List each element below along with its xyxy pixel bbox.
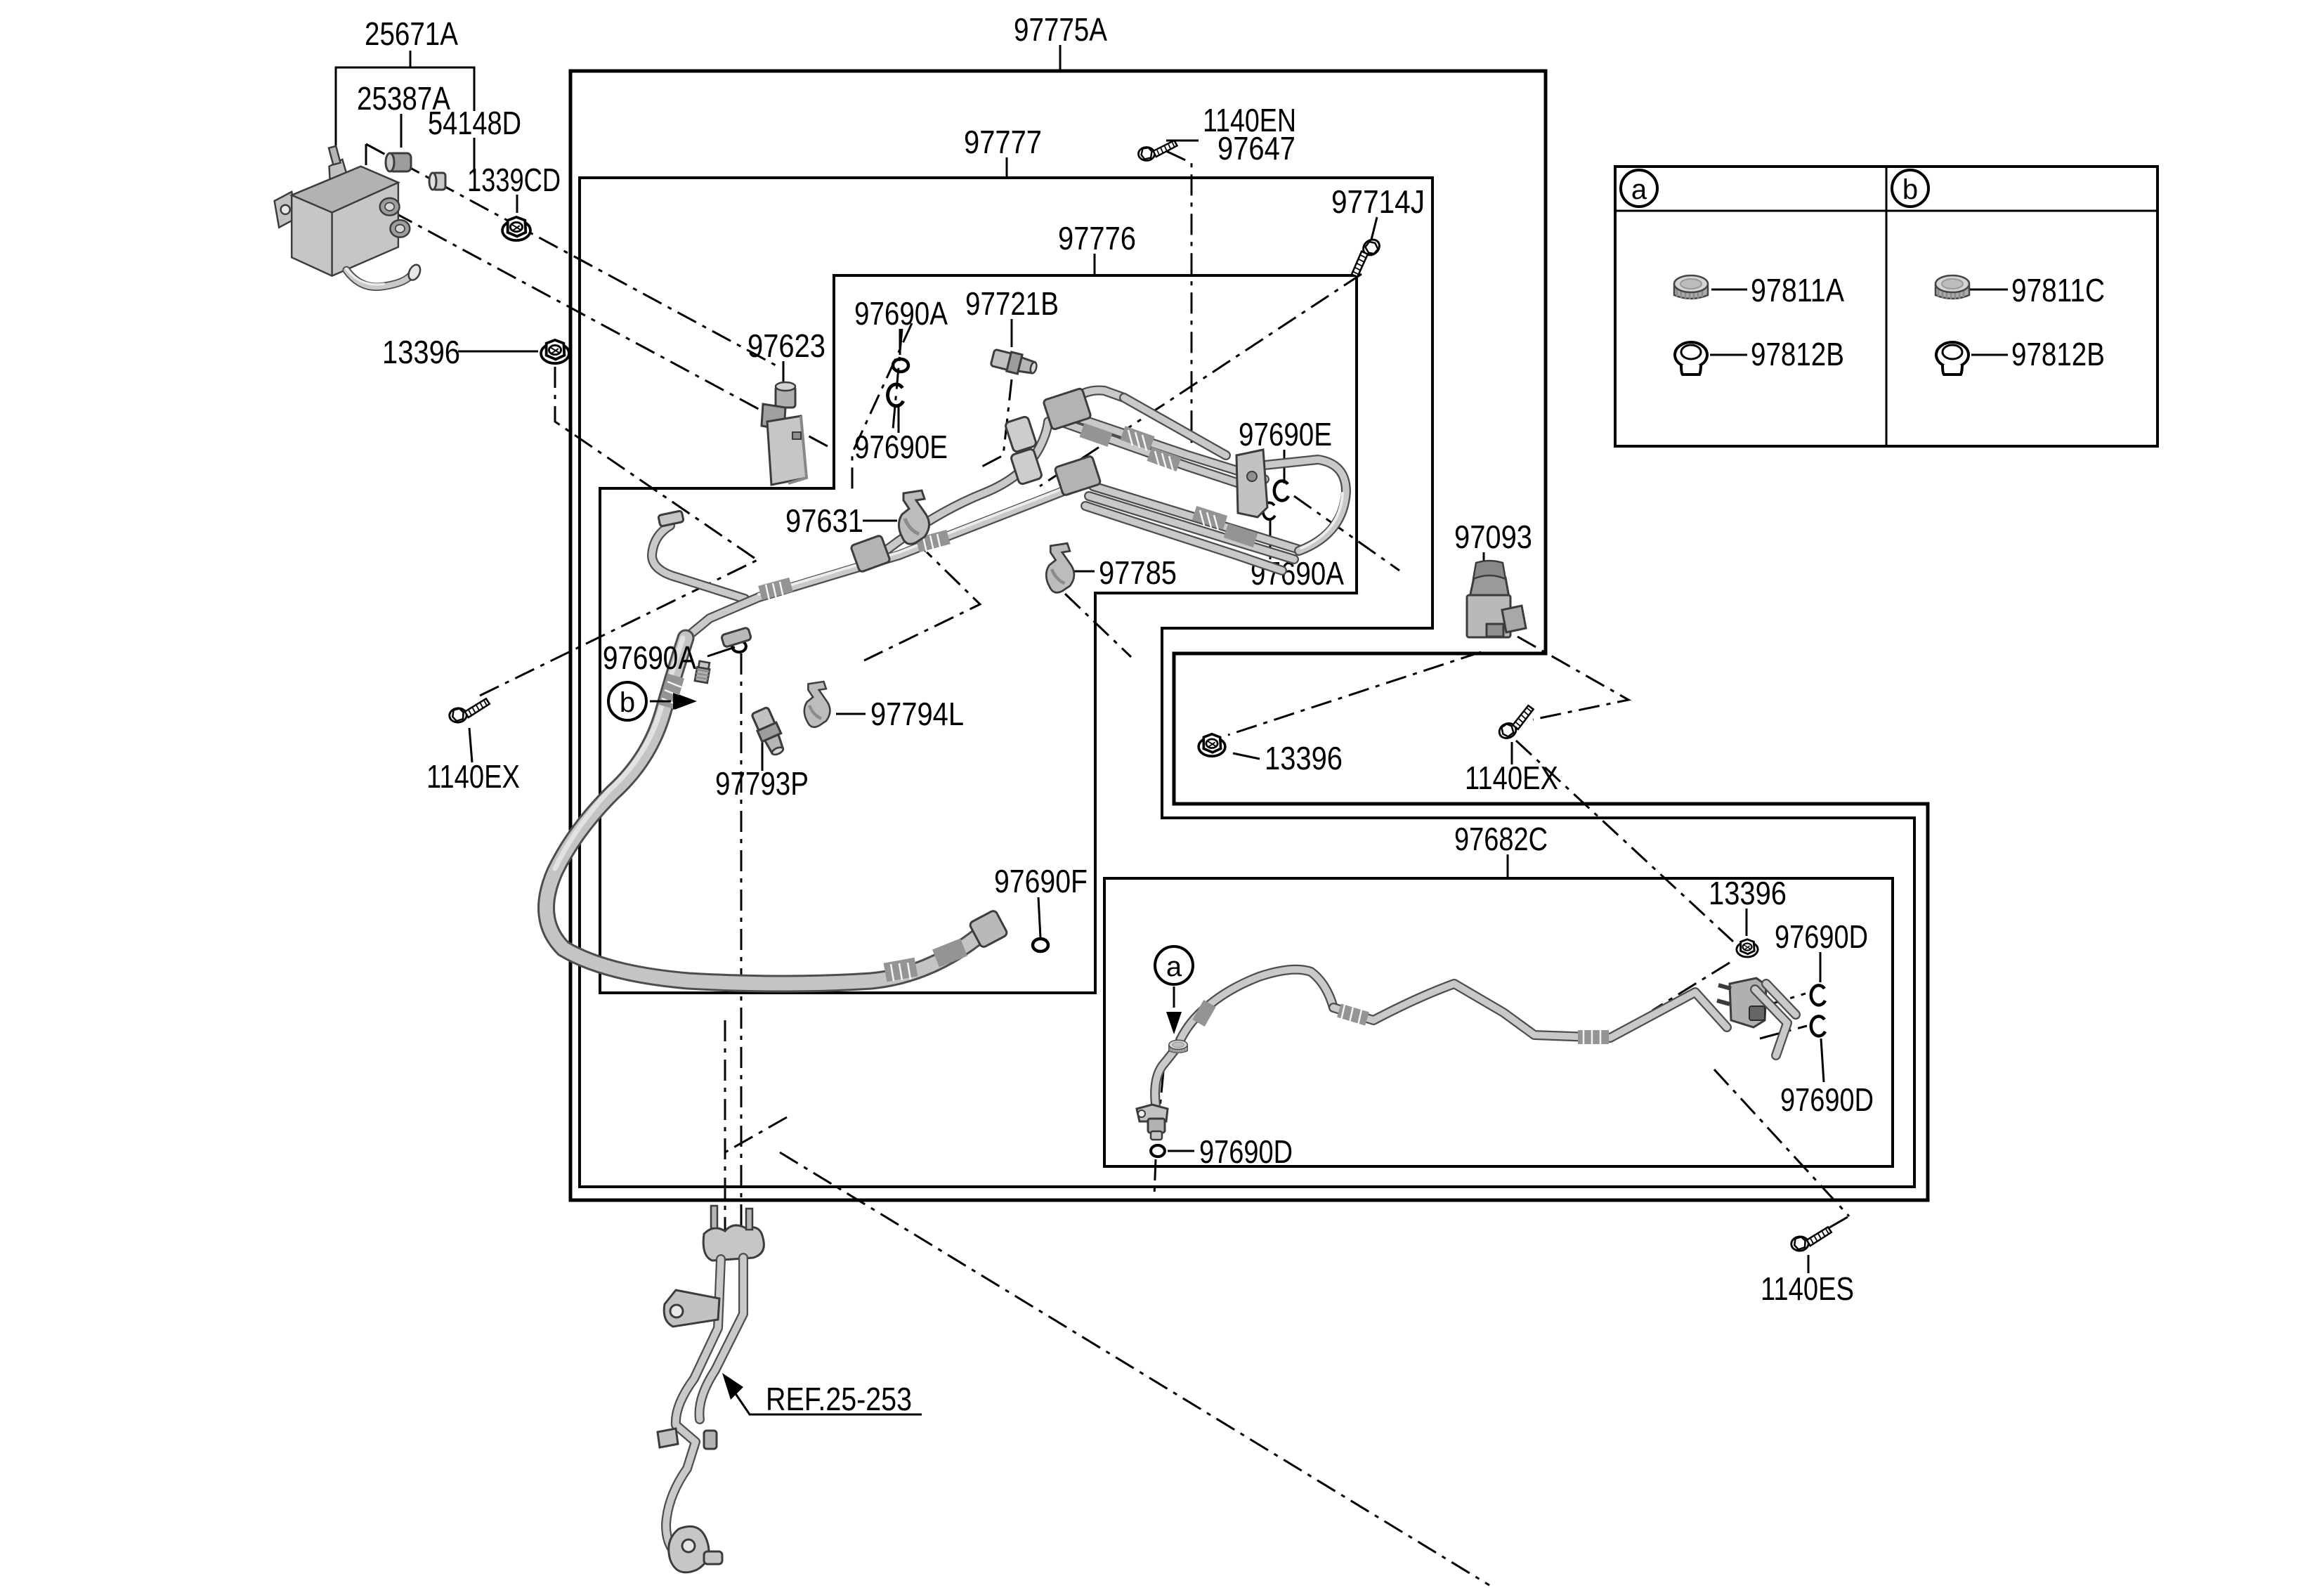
svg-text:97690E: 97690E bbox=[1239, 416, 1332, 453]
svg-text:97093: 97093 bbox=[1454, 519, 1532, 555]
svg-text:97714J: 97714J bbox=[1331, 183, 1425, 220]
svg-text:b: b bbox=[1902, 174, 1918, 205]
svg-text:25671A: 25671A bbox=[365, 15, 458, 52]
svg-text:97631: 97631 bbox=[785, 502, 863, 539]
svg-text:REF.25-253: REF.25-253 bbox=[766, 1381, 912, 1417]
svg-text:97811A: 97811A bbox=[1751, 272, 1844, 308]
svg-text:97811C: 97811C bbox=[2011, 272, 2105, 308]
svg-text:a: a bbox=[1631, 174, 1647, 205]
svg-text:97690F: 97690F bbox=[994, 863, 1088, 899]
svg-text:97690D: 97690D bbox=[1199, 1133, 1293, 1170]
svg-text:97647: 97647 bbox=[1218, 130, 1295, 167]
svg-text:97812B: 97812B bbox=[1751, 336, 1844, 372]
svg-text:13396: 13396 bbox=[1265, 740, 1343, 776]
svg-text:97794L: 97794L bbox=[870, 696, 964, 732]
svg-text:13396: 13396 bbox=[1709, 875, 1787, 911]
svg-text:97623: 97623 bbox=[748, 327, 825, 364]
svg-text:97690D: 97690D bbox=[1775, 918, 1868, 955]
svg-text:1140ES: 1140ES bbox=[1761, 1270, 1854, 1307]
svg-text:97690A: 97690A bbox=[854, 295, 948, 332]
svg-text:1339CD: 1339CD bbox=[467, 162, 561, 198]
svg-text:1140EX: 1140EX bbox=[426, 758, 520, 795]
svg-text:b: b bbox=[620, 687, 635, 718]
svg-text:97785: 97785 bbox=[1099, 554, 1177, 591]
svg-text:97812B: 97812B bbox=[2011, 336, 2105, 372]
svg-text:a: a bbox=[1166, 951, 1182, 982]
svg-text:97777: 97777 bbox=[964, 124, 1042, 160]
svg-text:97682C: 97682C bbox=[1454, 821, 1548, 857]
svg-text:97776: 97776 bbox=[1058, 220, 1136, 256]
svg-text:97721B: 97721B bbox=[965, 285, 1059, 322]
svg-text:13396: 13396 bbox=[382, 334, 460, 370]
svg-text:97690E: 97690E bbox=[854, 429, 948, 465]
svg-text:97690A: 97690A bbox=[603, 639, 696, 676]
svg-text:97775A: 97775A bbox=[1014, 11, 1107, 48]
svg-text:1140EX: 1140EX bbox=[1465, 760, 1558, 796]
svg-text:97690D: 97690D bbox=[1780, 1081, 1874, 1118]
